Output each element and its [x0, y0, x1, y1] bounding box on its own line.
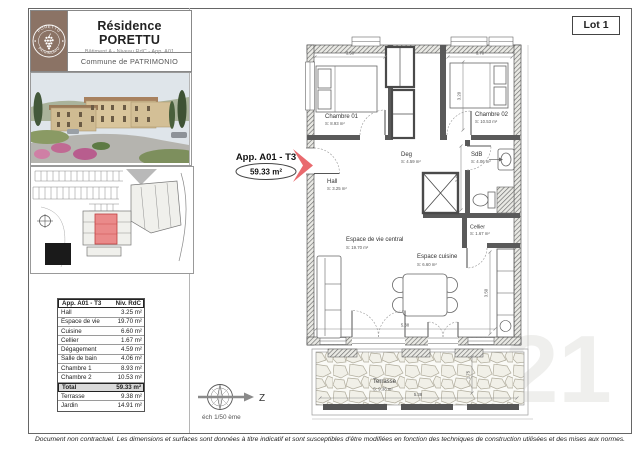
room-chambre02-name: Chambre 02: [475, 112, 509, 118]
cypress-tree: [178, 90, 187, 128]
chambre-01-door: [360, 110, 385, 135]
room-label: Jardin: [58, 402, 110, 409]
room-label: Chambre 1: [58, 365, 110, 372]
room-area: 14.91 m²: [110, 402, 144, 409]
room-label: Terrasse: [58, 393, 110, 400]
parked-car: [67, 129, 79, 134]
room-area: 3.25 m²: [110, 309, 144, 316]
room-label: Dégagement: [58, 346, 110, 353]
kitchen-counter: [497, 249, 514, 337]
table-total-row: Total59.33 m²: [58, 383, 144, 392]
sofa: [317, 256, 341, 338]
cellier-door: [467, 248, 487, 268]
room-cuisine-area: S: 6.60 m²: [417, 262, 437, 267]
room-terrasse-name: Terrasse: [373, 379, 397, 385]
room-chambre02-area: S: 10.53 m²: [475, 119, 498, 124]
total-label: Total: [59, 384, 109, 391]
table-row: Chambre 18.93 m²: [58, 364, 144, 373]
room-deg-area: S: 4.59 m²: [401, 159, 421, 164]
room-label: Chambre 2: [58, 374, 110, 381]
site-dark-block: [45, 243, 71, 265]
dim-chambre1-width: 3.50: [346, 51, 355, 56]
compass: Z: [196, 381, 272, 415]
room-deg-name: Deg: [401, 152, 412, 158]
room-hall-area: S: 3.25 m²: [327, 186, 347, 191]
bed-chambre-01: [316, 66, 377, 112]
table-header-apartment: App. A01 - T3: [59, 300, 109, 307]
parked-car: [171, 132, 187, 138]
room-label: Espace de vie: [58, 318, 110, 325]
dim-kitchen-height: 3.50: [484, 288, 489, 297]
room-area: 9.38 m²: [110, 393, 144, 400]
header: PORETTU PATRIMONIO Résidence PORETTU Bât…: [30, 10, 192, 72]
floor-plan: 3.50 3.70 3.20 2.40 3.50 5.38 5.38 1.75 …: [225, 0, 640, 435]
table-row: Jardin14.91 m²: [58, 401, 144, 410]
title-area: Résidence PORETTU Bâtiment A - Niveau Rd…: [67, 11, 191, 53]
entrance-door: [314, 148, 340, 174]
dim-chambre2-width: 3.70: [476, 51, 485, 56]
room-chambre01-name: Chambre 01: [325, 114, 359, 120]
bay-door-right: [428, 322, 458, 337]
room-area: 4.59 m²: [110, 346, 144, 353]
apartment-area: 59.33 m²: [250, 168, 282, 177]
chambre-02-door: [447, 111, 471, 135]
duct-hatched: [497, 187, 514, 213]
commune-label: Commune de PATRIMONIO: [67, 53, 191, 71]
wc-bowl: [473, 194, 488, 206]
room-area: 1.67 m²: [110, 337, 144, 344]
room-hall-name: Hall: [327, 179, 337, 185]
room-area: 10.53 m²: [110, 374, 144, 381]
dim-living-width: 5.38: [401, 323, 410, 328]
site-plan-drawing: [31, 167, 191, 271]
dim-sdb-height: 2.40: [455, 173, 460, 182]
residence-photo: [30, 72, 192, 166]
room-cellier-area: S: 1.67 m²: [470, 231, 490, 236]
technical-shaft: [423, 173, 458, 213]
room-label: Salle de bain: [58, 355, 110, 362]
table-row: Salle de bain4.06 m²: [58, 355, 144, 364]
bay-door-left: [352, 311, 405, 338]
room-terrasse-area: S: 9.38 m²: [373, 387, 393, 392]
surface-table: App. A01 - T3 Niv. RdC Hall3.25 m² Espac…: [57, 298, 145, 412]
room-area: 6.60 m²: [110, 328, 144, 335]
compass-north-letter: Z: [259, 393, 265, 404]
room-area: 4.06 m²: [110, 355, 144, 362]
dining-set: [393, 274, 458, 316]
residence-photo-render: [31, 73, 189, 163]
room-cuisine-name: Espace cuisine: [417, 254, 458, 260]
floorplan-document: { "header": { "logo_top": "PORETTU", "lo…: [0, 0, 640, 451]
room-chambre01-area: S: 8.93 m²: [325, 121, 345, 126]
room-sdb-area: S: 4.06 m²: [471, 159, 491, 164]
room-label: Cuisine: [58, 328, 110, 335]
table-row: Espace de vie19.70 m²: [58, 318, 144, 327]
dim-terrace-height: 1.75: [466, 370, 471, 379]
kitchen-sink: [500, 321, 511, 332]
table-row: Terrasse9.38 m²: [58, 392, 144, 401]
table-row: Hall3.25 m²: [58, 308, 144, 317]
room-label: Hall: [58, 309, 110, 316]
table-row: Cellier1.67 m²: [58, 336, 144, 345]
room-living-area: S: 19.70 m²: [346, 245, 369, 250]
room-area: 8.93 m²: [110, 365, 144, 372]
poretu-stamp-icon: PORETTU PATRIMONIO: [31, 11, 67, 71]
table-header-level: Niv. RdC: [109, 300, 143, 307]
terrace: [312, 349, 533, 419]
site-plan: [30, 166, 194, 274]
room-living-name: Espace de vie central: [346, 237, 403, 243]
logo-left-dot-icon: [34, 40, 36, 42]
residence-title: Résidence PORETTU: [68, 19, 191, 47]
room-sdb-name: SdB: [471, 152, 482, 158]
bed-chambre-02: [450, 63, 508, 108]
wc-tank: [488, 192, 495, 208]
highlighted-unit: [95, 214, 117, 244]
table-row: Dégagement4.59 m²: [58, 345, 144, 354]
dim-terrace-width: 5.38: [414, 392, 423, 397]
table-row: Cuisine6.60 m²: [58, 327, 144, 336]
footer-disclaimer: Document non contractuel. Les dimensions…: [28, 436, 632, 443]
table-row: Chambre 210.53 m²: [58, 373, 144, 382]
logo: PORETTU PATRIMONIO: [31, 11, 67, 71]
room-cellier-name: Cellier: [470, 225, 485, 231]
apartment-callout: App. A01 - T3 59.33 m²: [236, 149, 313, 182]
dim-chambre2-height: 3.20: [457, 91, 462, 100]
room-area: 19.70 m²: [110, 318, 144, 325]
compass-rose-icon: [198, 385, 254, 410]
total-area: 59.33 m²: [109, 384, 143, 391]
bathroom-door: [467, 146, 491, 170]
table-header-row: App. A01 - T3 Niv. RdC: [58, 299, 144, 308]
room-label: Cellier: [58, 337, 110, 344]
dining-table: [403, 274, 447, 316]
apartment-name: App. A01 - T3: [236, 152, 296, 163]
flower-bush: [51, 143, 71, 153]
logo-right-dot-icon: [62, 40, 64, 42]
